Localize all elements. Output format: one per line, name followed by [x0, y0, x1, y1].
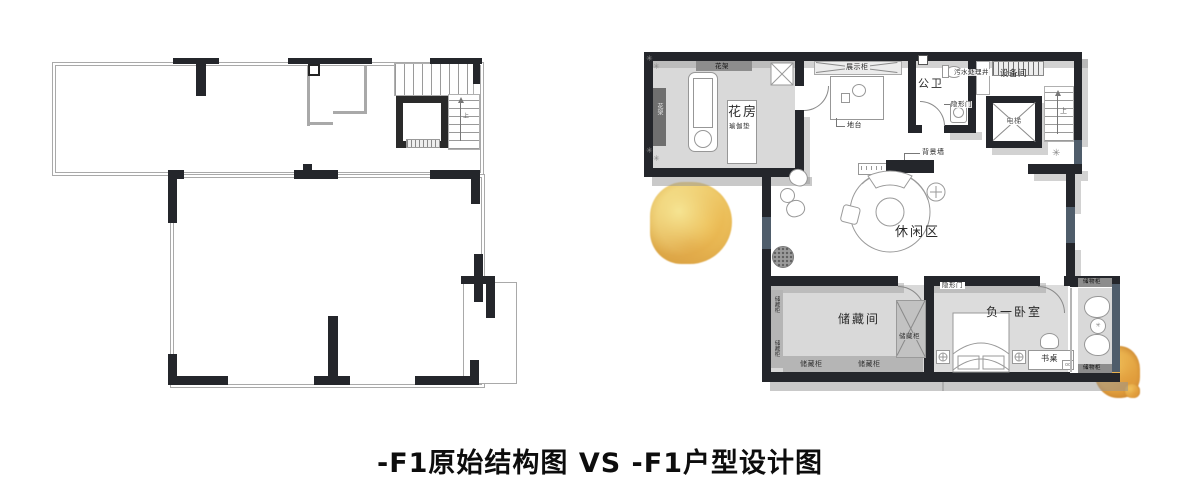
left-plan: 上	[0, 0, 560, 420]
tea-platform	[830, 76, 884, 120]
chair-icon	[1084, 296, 1110, 318]
wall	[762, 249, 771, 278]
sewage-well-label: 污水处理井	[953, 69, 990, 76]
leader-line	[904, 153, 920, 154]
storage-cabinet-label: 储藏柜	[800, 361, 823, 368]
wall	[1066, 243, 1075, 278]
tree-icon	[650, 182, 732, 264]
teapot-icon	[852, 84, 866, 97]
equipment-room-label: 设备间	[1000, 70, 1027, 79]
window-wall	[762, 217, 771, 249]
chair-icon	[1084, 334, 1110, 356]
diamond-tile-icon	[770, 62, 794, 86]
wall	[1074, 52, 1082, 140]
door-arc	[920, 101, 945, 126]
wall	[762, 372, 936, 382]
yoga-mat-label: 瑜伽垫	[729, 123, 750, 130]
leader-line	[944, 104, 950, 105]
hidden-door-label: 隐形门	[940, 282, 965, 289]
stairs-up-label: 上	[463, 114, 470, 120]
desk-label: 书桌	[1041, 355, 1058, 363]
stairs-up-label: 上	[1060, 108, 1068, 115]
flower-room-label: 花房	[728, 106, 758, 119]
lounge-chair-base	[694, 130, 712, 148]
storage-cabinet-label: 储藏柜	[899, 333, 920, 340]
wall-column	[196, 62, 206, 96]
stairs-arrow	[1057, 96, 1058, 134]
stairs-arrow-head	[458, 97, 464, 103]
lounge-chair-inner	[693, 78, 713, 128]
storage-cabinet-label: 储藏柜	[773, 340, 779, 357]
fan-flower-icon: ✳	[1052, 149, 1060, 159]
wall	[303, 164, 312, 170]
storage-cabinet-label: 储藏柜	[858, 361, 881, 368]
floorplan-comparison: 上	[0, 0, 1200, 500]
plant-icon: ✳	[653, 63, 660, 71]
wall	[288, 58, 372, 64]
storage-room-label: 储藏间	[838, 313, 880, 325]
tree-icon	[1124, 384, 1140, 398]
window-wall	[1074, 140, 1082, 164]
wall	[804, 52, 1082, 61]
leader-line	[836, 126, 845, 127]
wall	[294, 170, 338, 179]
wall	[415, 376, 477, 385]
wall	[908, 125, 922, 133]
stairs	[448, 94, 480, 150]
wall-partition	[328, 316, 338, 385]
bathroom-label: 公卫	[918, 78, 944, 89]
window-wall	[1066, 207, 1075, 243]
flower-rack	[653, 88, 666, 146]
wall	[644, 52, 804, 61]
small-box: oo	[1062, 360, 1074, 370]
leisure-area-label: 休闲区	[895, 226, 940, 239]
plant-icon: ✳	[646, 55, 653, 63]
left-plan-small-room-wall	[307, 122, 333, 125]
left-plan-small-room-wall	[364, 66, 367, 114]
window-wall	[1112, 284, 1120, 372]
toilet-tank	[942, 65, 949, 78]
wall	[762, 276, 771, 382]
sewage-shaft	[976, 61, 990, 95]
desk-chair	[1040, 333, 1059, 349]
sink-bowl	[953, 107, 964, 118]
right-plan: 花架 花架 ✳ ✳ ✳ ✳ 花房 瑜伽垫 展示柜 地台	[600, 0, 1200, 430]
wall	[795, 52, 804, 86]
teacup-icon	[841, 93, 850, 103]
leader-line	[836, 118, 837, 126]
wall	[430, 170, 480, 179]
wall	[473, 62, 480, 84]
wall	[486, 282, 495, 318]
left-plan-small-room-wall	[333, 111, 364, 114]
wall	[908, 61, 916, 125]
wall-nub	[308, 64, 320, 76]
wall	[168, 170, 184, 179]
wall	[470, 360, 479, 385]
locker-cabinet-label: 储物柜	[1083, 366, 1101, 372]
small-table-icon: ✳	[1090, 318, 1106, 334]
locker-cabinet-label: 储物柜	[1083, 280, 1101, 286]
nightstand-lamp-icon	[936, 350, 950, 364]
bedroom-label: 负一卧室	[986, 306, 1042, 318]
nightstand-lamp-icon	[1012, 350, 1026, 364]
wall	[644, 168, 804, 177]
wall	[944, 125, 976, 133]
stairs-arrow	[460, 103, 461, 141]
round-sofa	[838, 162, 948, 262]
hidden-door-label: 隐形门	[951, 101, 972, 108]
wall	[168, 376, 228, 385]
wall	[1028, 164, 1082, 174]
wall	[471, 179, 480, 204]
flower-rack-label: 花架	[715, 63, 729, 70]
plant-icon: ✳	[646, 147, 653, 155]
background-wall-label: 背景墙	[922, 149, 945, 156]
wall	[762, 177, 771, 217]
caption-title: -F1原始结构图 VS -F1户型设计图	[0, 441, 1200, 480]
wall	[168, 179, 177, 223]
plant-icon: ✳	[653, 155, 660, 163]
wall	[762, 276, 898, 286]
display-cabinet-label: 展示柜	[845, 64, 870, 71]
stairs	[394, 63, 474, 96]
stairs-arrow-head	[1055, 90, 1061, 96]
bed-icon	[952, 312, 1010, 374]
wall	[1070, 373, 1120, 382]
platform-label: 地台	[847, 122, 862, 129]
shrub-icon	[772, 246, 794, 268]
wall	[168, 354, 177, 385]
leader-line	[904, 153, 905, 160]
elevator-tag	[406, 139, 440, 148]
elevator-label: 电梯	[1006, 118, 1023, 125]
wall	[644, 52, 653, 177]
wall	[795, 110, 804, 177]
wall	[1066, 174, 1075, 207]
flower-rack-label: 花架	[656, 103, 662, 115]
storage-cabinet-label: 储藏柜	[773, 296, 779, 313]
vent-box	[918, 55, 928, 65]
sliding-door-line	[1070, 288, 1072, 372]
